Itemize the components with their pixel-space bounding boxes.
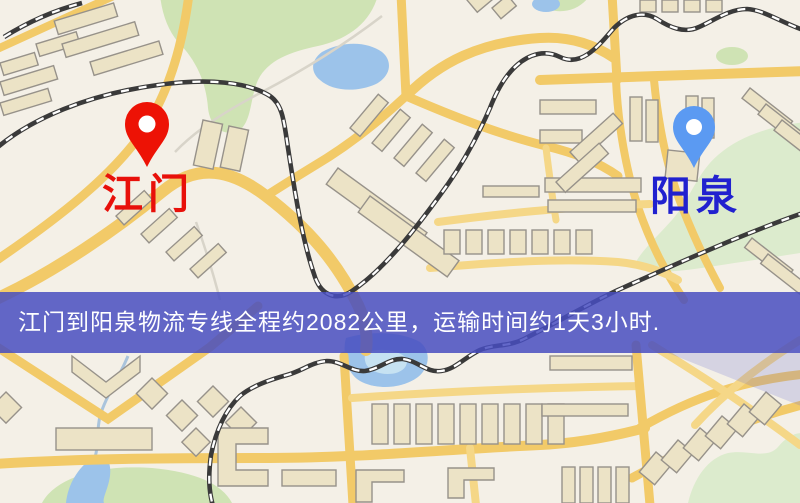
origin-pin-icon[interactable] bbox=[125, 102, 169, 167]
map-canvas[interactable]: 江门 阳泉 江门到阳泉物流专线全程约2082公里，运输时间约1天3小时. bbox=[0, 0, 800, 503]
route-info-banner: 江门到阳泉物流专线全程约2082公里，运输时间约1天3小时. bbox=[0, 292, 800, 353]
map-tiles bbox=[0, 0, 800, 503]
route-info-text: 江门到阳泉物流专线全程约2082公里，运输时间约1天3小时. bbox=[18, 309, 660, 335]
